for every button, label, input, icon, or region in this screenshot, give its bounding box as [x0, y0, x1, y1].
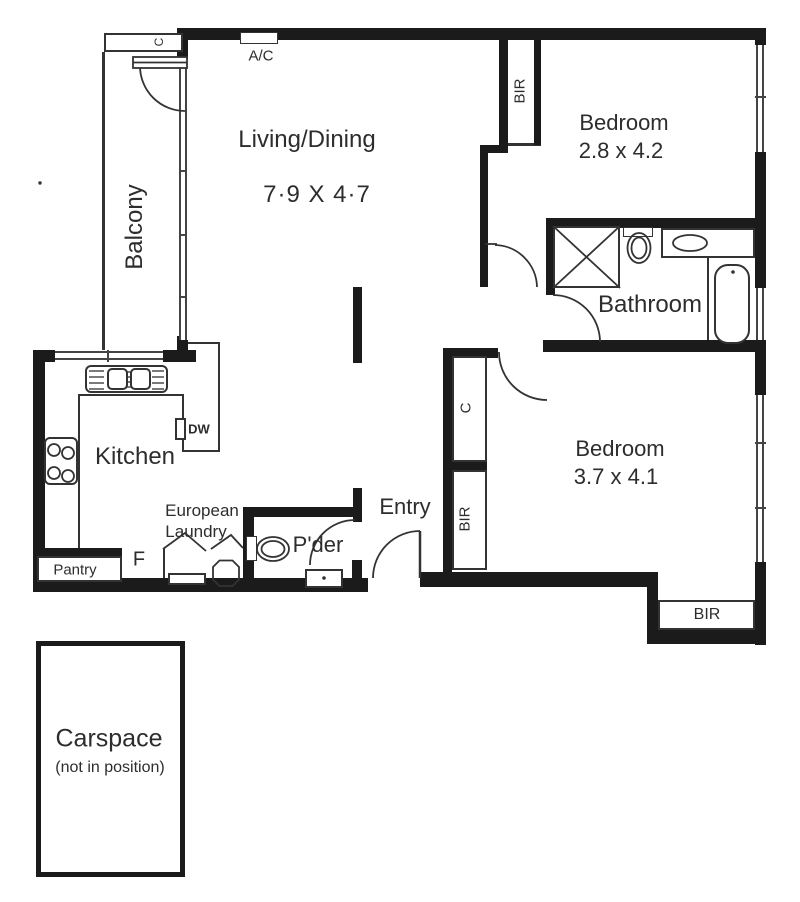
- bathtub-drain-dot: [731, 270, 735, 274]
- floor-plan: Living/Dining 7·9 X 4·7 Balcony Bedroom …: [0, 0, 800, 902]
- cupboard-label-bedroom2: C: [458, 403, 475, 414]
- vanity-basin-icon: [673, 235, 707, 251]
- burner-icon: [62, 447, 74, 459]
- powder-room-label: P'der: [293, 532, 344, 558]
- door-arc-bathroom: [553, 295, 600, 342]
- bathroom-label: Bathroom: [598, 291, 702, 319]
- bedroom2-dimensions: 3.7 x 4.1: [574, 464, 658, 490]
- entry-label: Entry: [379, 494, 430, 520]
- balcony-label: Balcony: [121, 184, 149, 269]
- laundry-trough-icon: [213, 561, 239, 587]
- living-room-label: Living/Dining: [238, 126, 375, 154]
- bir-label-bottom-right: BIR: [694, 606, 721, 624]
- powder-basin-dot: [322, 576, 326, 580]
- door-arc-entry: [373, 531, 420, 578]
- dishwasher-label: DW: [188, 422, 210, 437]
- bedroom1-label: Bedroom: [579, 110, 668, 136]
- bedroom1-dimensions: 2.8 x 4.2: [579, 138, 663, 164]
- ac-label: A/C: [248, 48, 273, 65]
- bir-label-bedroom1: BIR: [512, 78, 529, 103]
- door-arc-bedroom1: [495, 245, 537, 287]
- carspace-note: (not in position): [55, 759, 164, 777]
- burner-icon: [62, 470, 74, 482]
- bedroom2-label: Bedroom: [575, 436, 664, 462]
- toilet-bowl-inner: [262, 541, 285, 557]
- living-room-dimensions: 7·9 X 4·7: [263, 181, 371, 209]
- cupboard-label-top-left: C: [152, 38, 166, 47]
- door-arc-balcony: [140, 66, 185, 111]
- stray-dot: [38, 181, 41, 184]
- toilet-bowl-inner: [632, 238, 647, 259]
- laundry-label-line1: European: [165, 501, 239, 521]
- bir-label-bedroom2: BIR: [457, 506, 474, 531]
- pantry-label: Pantry: [53, 562, 96, 579]
- laundry-label-line2: Laundry: [165, 522, 226, 542]
- fridge-label: F: [133, 549, 145, 572]
- burner-icon: [48, 467, 60, 479]
- sink-drainer-lines: [89, 371, 164, 389]
- kitchen-label: Kitchen: [95, 443, 175, 471]
- door-arc-bedroom2: [499, 352, 547, 400]
- carspace-label: Carspace: [56, 725, 163, 754]
- burner-icon: [48, 444, 60, 456]
